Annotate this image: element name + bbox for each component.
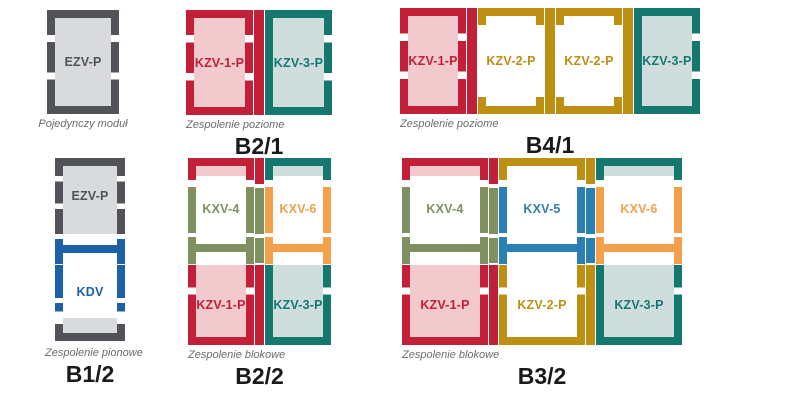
- group-name: B2/2: [188, 363, 331, 390]
- module-label: KZV-1-P: [188, 265, 254, 345]
- h-connector: [499, 236, 585, 265]
- group-caption: Zespolenie pionowe: [45, 347, 135, 359]
- connector-column: [488, 158, 499, 236]
- module-label: KZV-2-P: [478, 8, 544, 114]
- module-label: EZV-P: [47, 10, 119, 114]
- module-label: KZV-1-P: [402, 265, 488, 345]
- connector-column: [255, 238, 264, 263]
- group-b41: KZV-1-P KZV-2-P KZV-2-P KZV-3-P Zespolen…: [400, 8, 700, 159]
- group-caption: Zespolenie blokowe: [402, 349, 682, 361]
- group-name: B1/2: [45, 361, 135, 388]
- module-label: KXV-4: [402, 182, 488, 236]
- module-kzv-3-p: KZV-3-P: [265, 10, 332, 115]
- module-label: KZV-2-P: [499, 265, 585, 345]
- h-connector: [596, 236, 682, 265]
- module-kzv-2-p: KZV-2-P: [556, 8, 622, 114]
- module-label: KXV-4: [188, 182, 254, 236]
- group-single: EZV-P Pojedynczy moduł: [33, 10, 133, 130]
- module-label: KDV: [55, 265, 125, 318]
- module-label: KZV-3-P: [265, 265, 331, 345]
- module-label: EZV-P: [55, 158, 125, 234]
- group-b32: KXV-4 KXV-5 KXV-6 KZV-1-P KZV-2-P: [402, 158, 682, 390]
- h-connector: [55, 238, 125, 265]
- connector-column: [586, 265, 595, 345]
- connector-column: [489, 238, 498, 263]
- h-connector: [265, 236, 331, 265]
- group-caption: Zespolenie blokowe: [188, 349, 331, 361]
- module-kzv-1-p: KZV-1-P: [186, 10, 253, 115]
- module-kxv-6: KXV-6: [265, 158, 331, 236]
- module-kzv-3-p: KZV-3-P: [634, 8, 700, 114]
- module-kxv-6: KXV-6: [596, 158, 682, 236]
- module-ezv-p: EZV-P: [47, 10, 119, 114]
- connector-column: [585, 158, 596, 236]
- module-kxv-5: KXV-5: [499, 158, 585, 236]
- bottom-cap: [55, 318, 125, 341]
- connector-column: [254, 158, 265, 236]
- module-kxv-4: KXV-4: [402, 158, 488, 236]
- h-connector: [188, 236, 254, 265]
- module-kzv-1-p: KZV-1-P: [188, 265, 254, 345]
- module-kzv-2-p: KZV-2-P: [499, 265, 585, 345]
- connector-bar: [623, 8, 633, 114]
- connector-column: [586, 238, 595, 263]
- module-label: KXV-5: [499, 182, 585, 236]
- module-label: KZV-3-P: [265, 10, 332, 115]
- flashing-combinations-diagram: EZV-P Pojedynczy moduł KZV-1-P KZV-3-P Z…: [0, 0, 800, 400]
- module-kxv-4: KXV-4: [188, 158, 254, 236]
- connector-bar: [254, 10, 264, 115]
- module-ezv-p: EZV-P: [55, 158, 125, 234]
- module-kzv-3-p: KZV-3-P: [265, 265, 331, 345]
- connector-bar: [467, 8, 477, 114]
- group-b22: KXV-4 KXV-6 KZV-1-P KZV-3-P Zespolenie b…: [188, 158, 331, 390]
- group-caption: Pojedynczy moduł: [33, 118, 133, 130]
- group-caption: Zespolenie poziome: [186, 119, 332, 131]
- h-connector: [402, 236, 488, 265]
- group-b12: EZV-P KDV Zespolenie pionowe B1/2: [45, 158, 135, 388]
- module-kzv-1-p: KZV-1-P: [402, 265, 488, 345]
- module-label: KZV-2-P: [556, 8, 622, 114]
- module-label: KZV-1-P: [186, 10, 253, 115]
- module-kzv-3-p: KZV-3-P: [596, 265, 682, 345]
- module-label: KZV-1-P: [400, 8, 466, 114]
- group-caption: Zespolenie poziome: [400, 118, 700, 130]
- group-b21: KZV-1-P KZV-3-P Zespolenie poziome B2/1: [186, 10, 332, 160]
- connector-bar: [545, 8, 555, 114]
- group-name: B4/1: [400, 132, 700, 159]
- group-name: B2/1: [186, 133, 332, 160]
- connector-column: [489, 265, 498, 345]
- module-label: KXV-6: [596, 182, 682, 236]
- connector-column: [255, 265, 264, 345]
- module-kzv-1-p: KZV-1-P: [400, 8, 466, 114]
- module-label: KXV-6: [265, 182, 331, 236]
- group-name: B3/2: [402, 363, 682, 390]
- module-kzv-2-p: KZV-2-P: [478, 8, 544, 114]
- module-label: KZV-3-P: [634, 8, 700, 114]
- module-label: KZV-3-P: [596, 265, 682, 345]
- module-kdv: KDV: [55, 265, 125, 318]
